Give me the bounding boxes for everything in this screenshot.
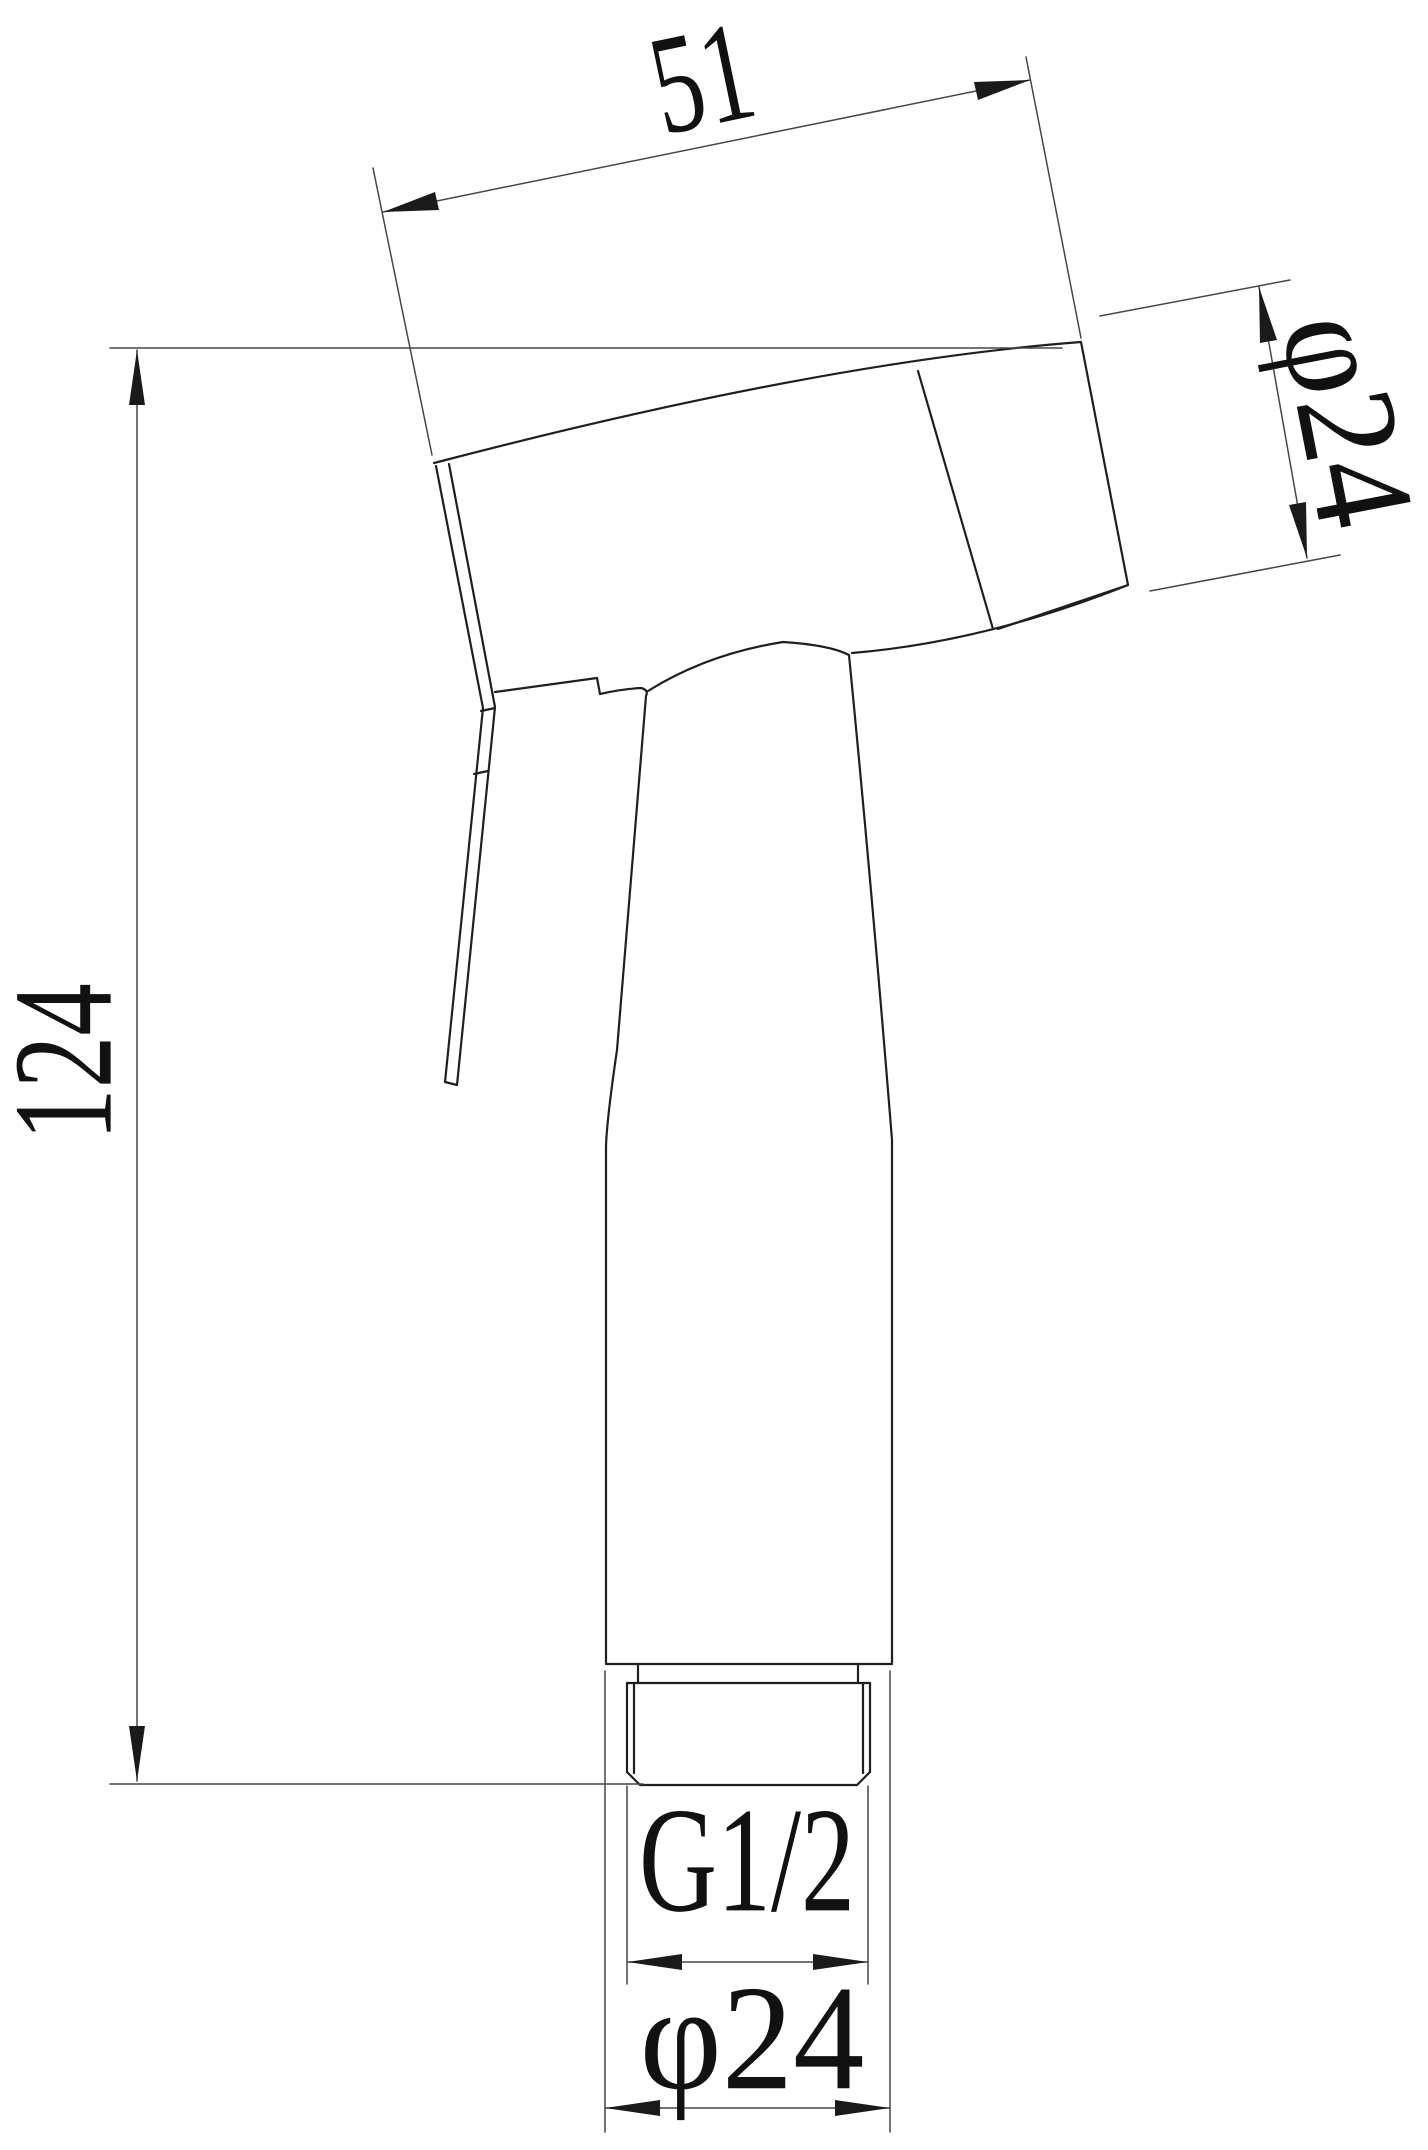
technical-drawing: 51 φ24 124 G1/2 φ24: [0, 0, 1428, 2150]
dim-label-overall-height: 124: [0, 983, 142, 1141]
dim-label-base-diameter: φ24: [640, 1955, 865, 2121]
dim-label-thread-spec: G1/2: [639, 1778, 855, 1943]
drawing-canvas: 51 φ24 124 G1/2 φ24: [0, 0, 1428, 2150]
